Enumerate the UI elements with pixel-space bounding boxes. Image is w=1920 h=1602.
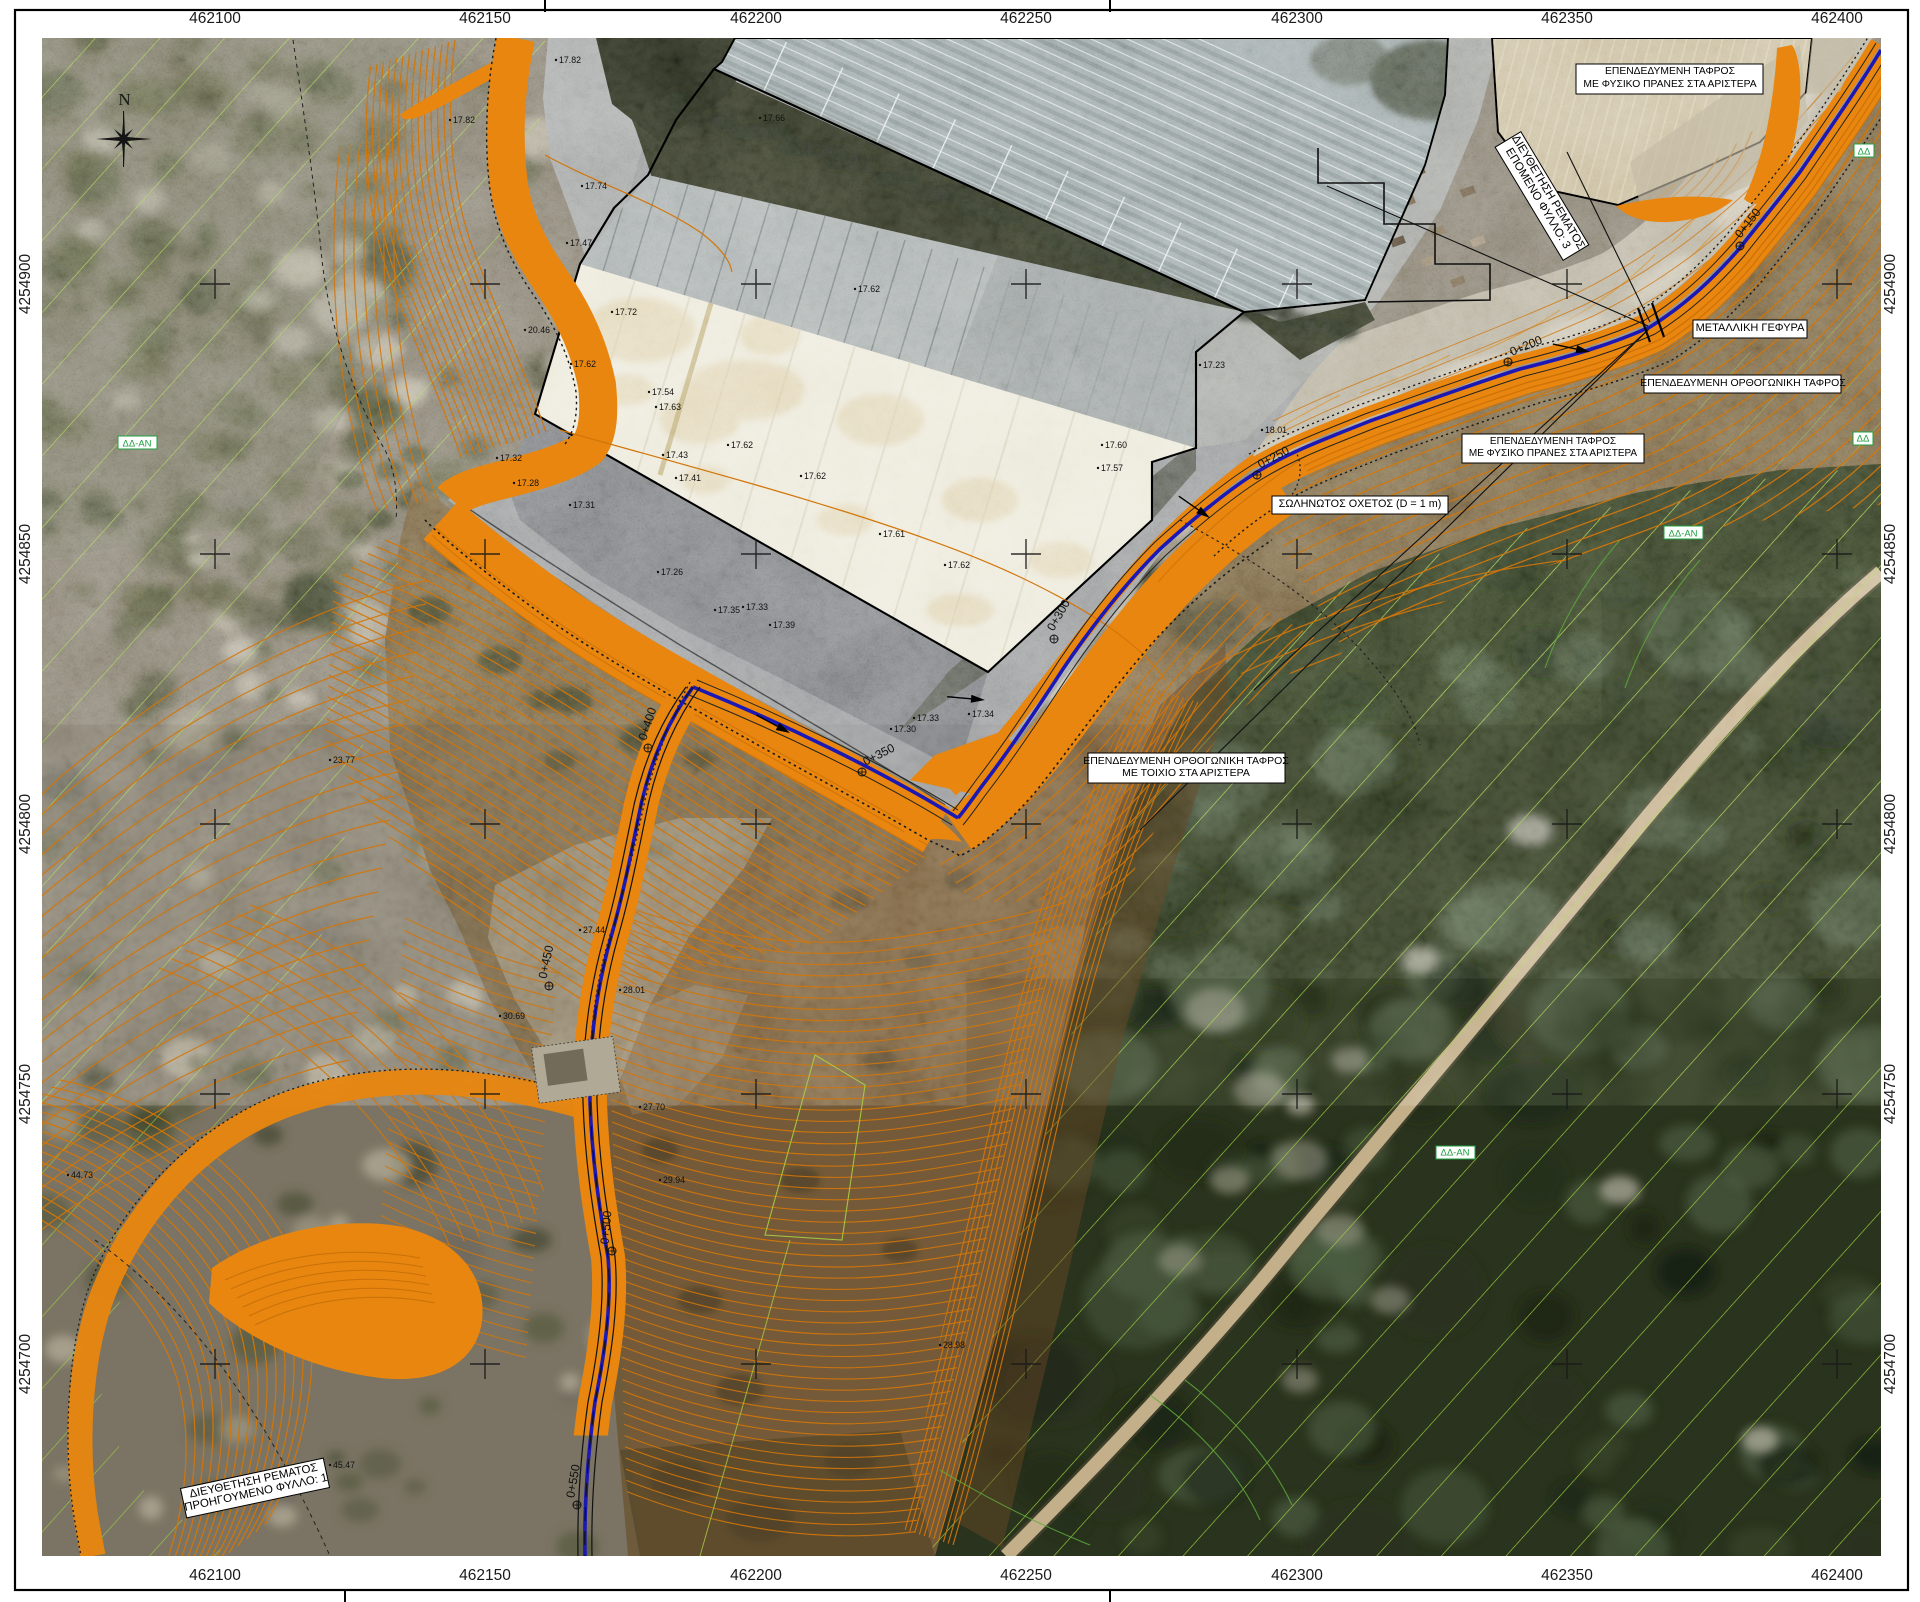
svg-text:29.94: 29.94 bbox=[663, 1175, 685, 1185]
svg-text:ΣΩΛΗΝΩΤΟΣ ΟΧΕΤΟΣ (D = 1 m): ΣΩΛΗΝΩΤΟΣ ΟΧΕΤΟΣ (D = 1 m) bbox=[1279, 498, 1442, 510]
svg-text:17.82: 17.82 bbox=[559, 55, 581, 65]
svg-text:0+500: 0+500 bbox=[598, 1210, 615, 1245]
svg-text:17.26: 17.26 bbox=[661, 567, 683, 577]
svg-text:17.60: 17.60 bbox=[1105, 440, 1127, 450]
svg-text:4254900: 4254900 bbox=[1882, 253, 1899, 314]
svg-text:17.62: 17.62 bbox=[574, 359, 596, 369]
svg-text:17.28: 17.28 bbox=[517, 478, 539, 488]
svg-text:462400: 462400 bbox=[1811, 1567, 1863, 1584]
svg-text:17.34: 17.34 bbox=[972, 709, 994, 719]
svg-text:ΜΕ ΦΥΣΙΚΟ ΠΡΑΝΕΣ ΣΤΑ ΑΡΙΣΤΕΡΑ: ΜΕ ΦΥΣΙΚΟ ΠΡΑΝΕΣ ΣΤΑ ΑΡΙΣΤΕΡΑ bbox=[1583, 79, 1756, 90]
svg-text:462350: 462350 bbox=[1541, 10, 1593, 27]
svg-text:45.47: 45.47 bbox=[333, 1460, 355, 1470]
svg-text:4254700: 4254700 bbox=[17, 1333, 34, 1394]
svg-text:4254850: 4254850 bbox=[1882, 523, 1899, 584]
svg-text:17.62: 17.62 bbox=[804, 471, 826, 481]
svg-text:462300: 462300 bbox=[1271, 1567, 1323, 1584]
svg-text:4254700: 4254700 bbox=[1882, 1333, 1899, 1394]
svg-text:17.62: 17.62 bbox=[858, 284, 880, 294]
svg-text:17.72: 17.72 bbox=[615, 307, 637, 317]
svg-text:30.69: 30.69 bbox=[503, 1011, 525, 1021]
svg-text:462400: 462400 bbox=[1811, 10, 1863, 27]
svg-text:17.63: 17.63 bbox=[659, 402, 681, 412]
svg-text:ΔΔ: ΔΔ bbox=[1857, 434, 1870, 445]
svg-text:17.57: 17.57 bbox=[1101, 463, 1123, 473]
svg-text:4254750: 4254750 bbox=[1882, 1063, 1899, 1124]
svg-text:27.70: 27.70 bbox=[643, 1102, 665, 1112]
svg-text:ΜΕ ΦΥΣΙΚΟ ΠΡΑΝΕΣ ΣΤΑ ΑΡΙΣΤΕΡΑ: ΜΕ ΦΥΣΙΚΟ ΠΡΑΝΕΣ ΣΤΑ ΑΡΙΣΤΕΡΑ bbox=[1469, 448, 1638, 459]
svg-text:462100: 462100 bbox=[189, 1567, 241, 1584]
svg-text:20.46: 20.46 bbox=[528, 325, 550, 335]
svg-text:17.35: 17.35 bbox=[718, 605, 740, 615]
svg-text:462300: 462300 bbox=[1271, 10, 1323, 27]
svg-text:ΔΔ-ΑΝ: ΔΔ-ΑΝ bbox=[1668, 529, 1697, 540]
svg-text:28.01: 28.01 bbox=[623, 985, 645, 995]
svg-text:17.32: 17.32 bbox=[500, 453, 522, 463]
svg-text:17.31: 17.31 bbox=[573, 500, 595, 510]
svg-text:ΔΔ: ΔΔ bbox=[1858, 147, 1871, 158]
svg-text:462100: 462100 bbox=[189, 10, 241, 27]
svg-text:44.73: 44.73 bbox=[71, 1170, 93, 1180]
svg-text:ΕΠΕΝΔΕΔΥΜΕΝΗ ΤΑΦΡΟΣ: ΕΠΕΝΔΕΔΥΜΕΝΗ ΤΑΦΡΟΣ bbox=[1605, 66, 1735, 77]
svg-text:ΜΕ ΤΟΙΧΙΟ ΣΤΑ ΑΡΙΣΤΕΡΑ: ΜΕ ΤΟΙΧΙΟ ΣΤΑ ΑΡΙΣΤΕΡΑ bbox=[1122, 767, 1250, 779]
svg-text:4254800: 4254800 bbox=[1882, 793, 1899, 854]
svg-text:17.62: 17.62 bbox=[731, 440, 753, 450]
svg-text:18.01: 18.01 bbox=[1265, 425, 1287, 435]
svg-text:ΕΠΕΝΔΕΔΥΜΕΝΗ ΟΡΘΟΓΩΝΙΚΗ ΤΑΦΡΟΣ: ΕΠΕΝΔΕΔΥΜΕΝΗ ΟΡΘΟΓΩΝΙΚΗ ΤΑΦΡΟΣ bbox=[1083, 755, 1289, 767]
svg-text:17.39: 17.39 bbox=[773, 620, 795, 630]
svg-text:462150: 462150 bbox=[459, 10, 511, 27]
svg-text:4254800: 4254800 bbox=[17, 793, 34, 854]
svg-text:17.47: 17.47 bbox=[570, 238, 592, 248]
svg-text:17.74: 17.74 bbox=[585, 181, 607, 191]
svg-text:4254850: 4254850 bbox=[17, 523, 34, 584]
svg-text:462350: 462350 bbox=[1541, 1567, 1593, 1584]
svg-text:ΕΠΕΝΔΕΔΥΜΕΝΗ ΟΡΘΟΓΩΝΙΚΗ ΤΑΦΡΟΣ: ΕΠΕΝΔΕΔΥΜΕΝΗ ΟΡΘΟΓΩΝΙΚΗ ΤΑΦΡΟΣ bbox=[1640, 377, 1846, 389]
svg-text:ΜΕΤΑΛΛΙΚΗ ΓΕΦΥΡΑ: ΜΕΤΑΛΛΙΚΗ ΓΕΦΥΡΑ bbox=[1696, 322, 1806, 334]
svg-text:17.33: 17.33 bbox=[746, 602, 768, 612]
svg-text:17.54: 17.54 bbox=[652, 387, 674, 397]
svg-text:17.82: 17.82 bbox=[453, 115, 475, 125]
svg-text:462150: 462150 bbox=[459, 1567, 511, 1584]
svg-text:28.98: 28.98 bbox=[943, 1340, 965, 1350]
svg-text:17.43: 17.43 bbox=[666, 450, 688, 460]
svg-text:462200: 462200 bbox=[730, 10, 782, 27]
svg-text:17.62: 17.62 bbox=[948, 560, 970, 570]
svg-text:462250: 462250 bbox=[1000, 1567, 1052, 1584]
svg-text:17.41: 17.41 bbox=[679, 473, 701, 483]
svg-text:ΕΠΕΝΔΕΔΥΜΕΝΗ ΤΑΦΡΟΣ: ΕΠΕΝΔΕΔΥΜΕΝΗ ΤΑΦΡΟΣ bbox=[1490, 436, 1616, 447]
svg-text:17.30: 17.30 bbox=[894, 724, 916, 734]
svg-text:27.44: 27.44 bbox=[583, 925, 605, 935]
svg-text:4254900: 4254900 bbox=[17, 253, 34, 314]
svg-text:17.66: 17.66 bbox=[763, 113, 785, 123]
svg-text:ΔΔ-ΑΝ: ΔΔ-ΑΝ bbox=[1440, 1148, 1469, 1159]
svg-text:N: N bbox=[118, 90, 130, 109]
svg-text:462200: 462200 bbox=[730, 1567, 782, 1584]
svg-text:17.33: 17.33 bbox=[917, 713, 939, 723]
svg-text:17.61: 17.61 bbox=[883, 529, 905, 539]
svg-text:23.77: 23.77 bbox=[333, 755, 355, 765]
svg-text:4254750: 4254750 bbox=[17, 1063, 34, 1124]
svg-text:ΔΔ-ΑΝ: ΔΔ-ΑΝ bbox=[122, 439, 151, 450]
svg-text:462250: 462250 bbox=[1000, 10, 1052, 27]
svg-text:17.23: 17.23 bbox=[1203, 360, 1225, 370]
